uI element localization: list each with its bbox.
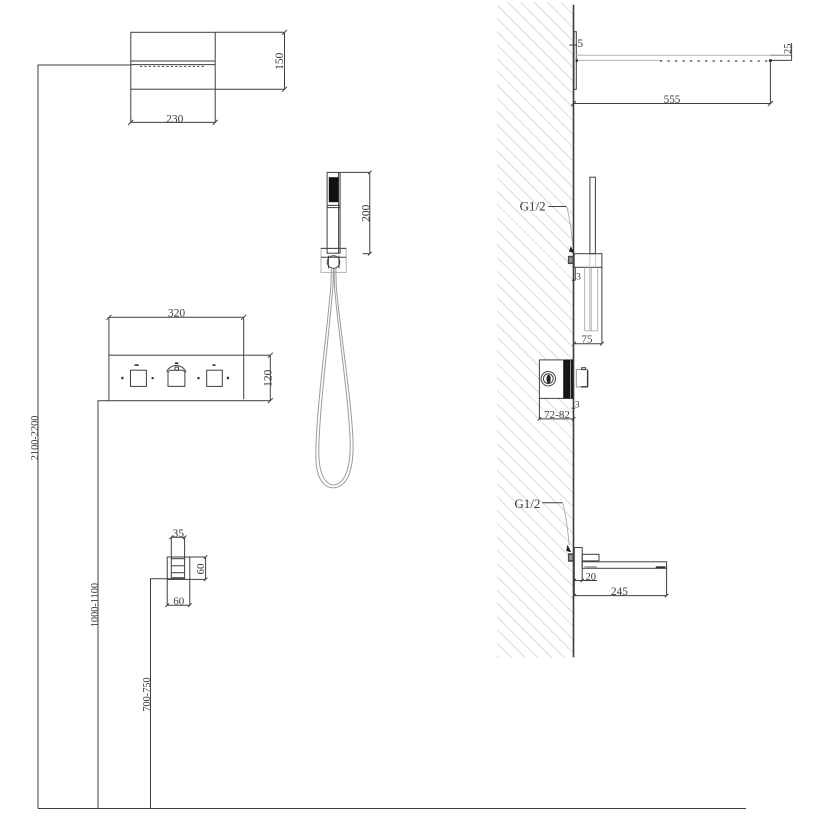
svg-text:230: 230 xyxy=(166,113,184,125)
svg-text:G1/2: G1/2 xyxy=(520,199,546,214)
svg-text:25: 25 xyxy=(783,43,794,54)
svg-text:150: 150 xyxy=(274,52,286,70)
svg-text:72-82: 72-82 xyxy=(544,409,570,421)
svg-text:20: 20 xyxy=(585,572,596,583)
svg-text:35: 35 xyxy=(173,528,185,540)
svg-text:75: 75 xyxy=(582,334,594,346)
svg-text:320: 320 xyxy=(168,308,186,320)
svg-text:700-750: 700-750 xyxy=(142,677,153,711)
svg-text:60: 60 xyxy=(173,596,185,608)
svg-text:245: 245 xyxy=(611,586,628,598)
svg-text:5: 5 xyxy=(577,38,583,50)
svg-text:G1/2: G1/2 xyxy=(514,496,540,511)
svg-text:555: 555 xyxy=(664,94,681,106)
svg-text:1000-1100: 1000-1100 xyxy=(90,583,101,627)
svg-text:3: 3 xyxy=(576,273,581,283)
svg-text:120: 120 xyxy=(263,369,275,387)
svg-text:3: 3 xyxy=(575,401,580,411)
svg-text:60: 60 xyxy=(195,563,207,575)
svg-text:200: 200 xyxy=(360,204,372,222)
svg-text:2100-2200: 2100-2200 xyxy=(30,416,41,461)
